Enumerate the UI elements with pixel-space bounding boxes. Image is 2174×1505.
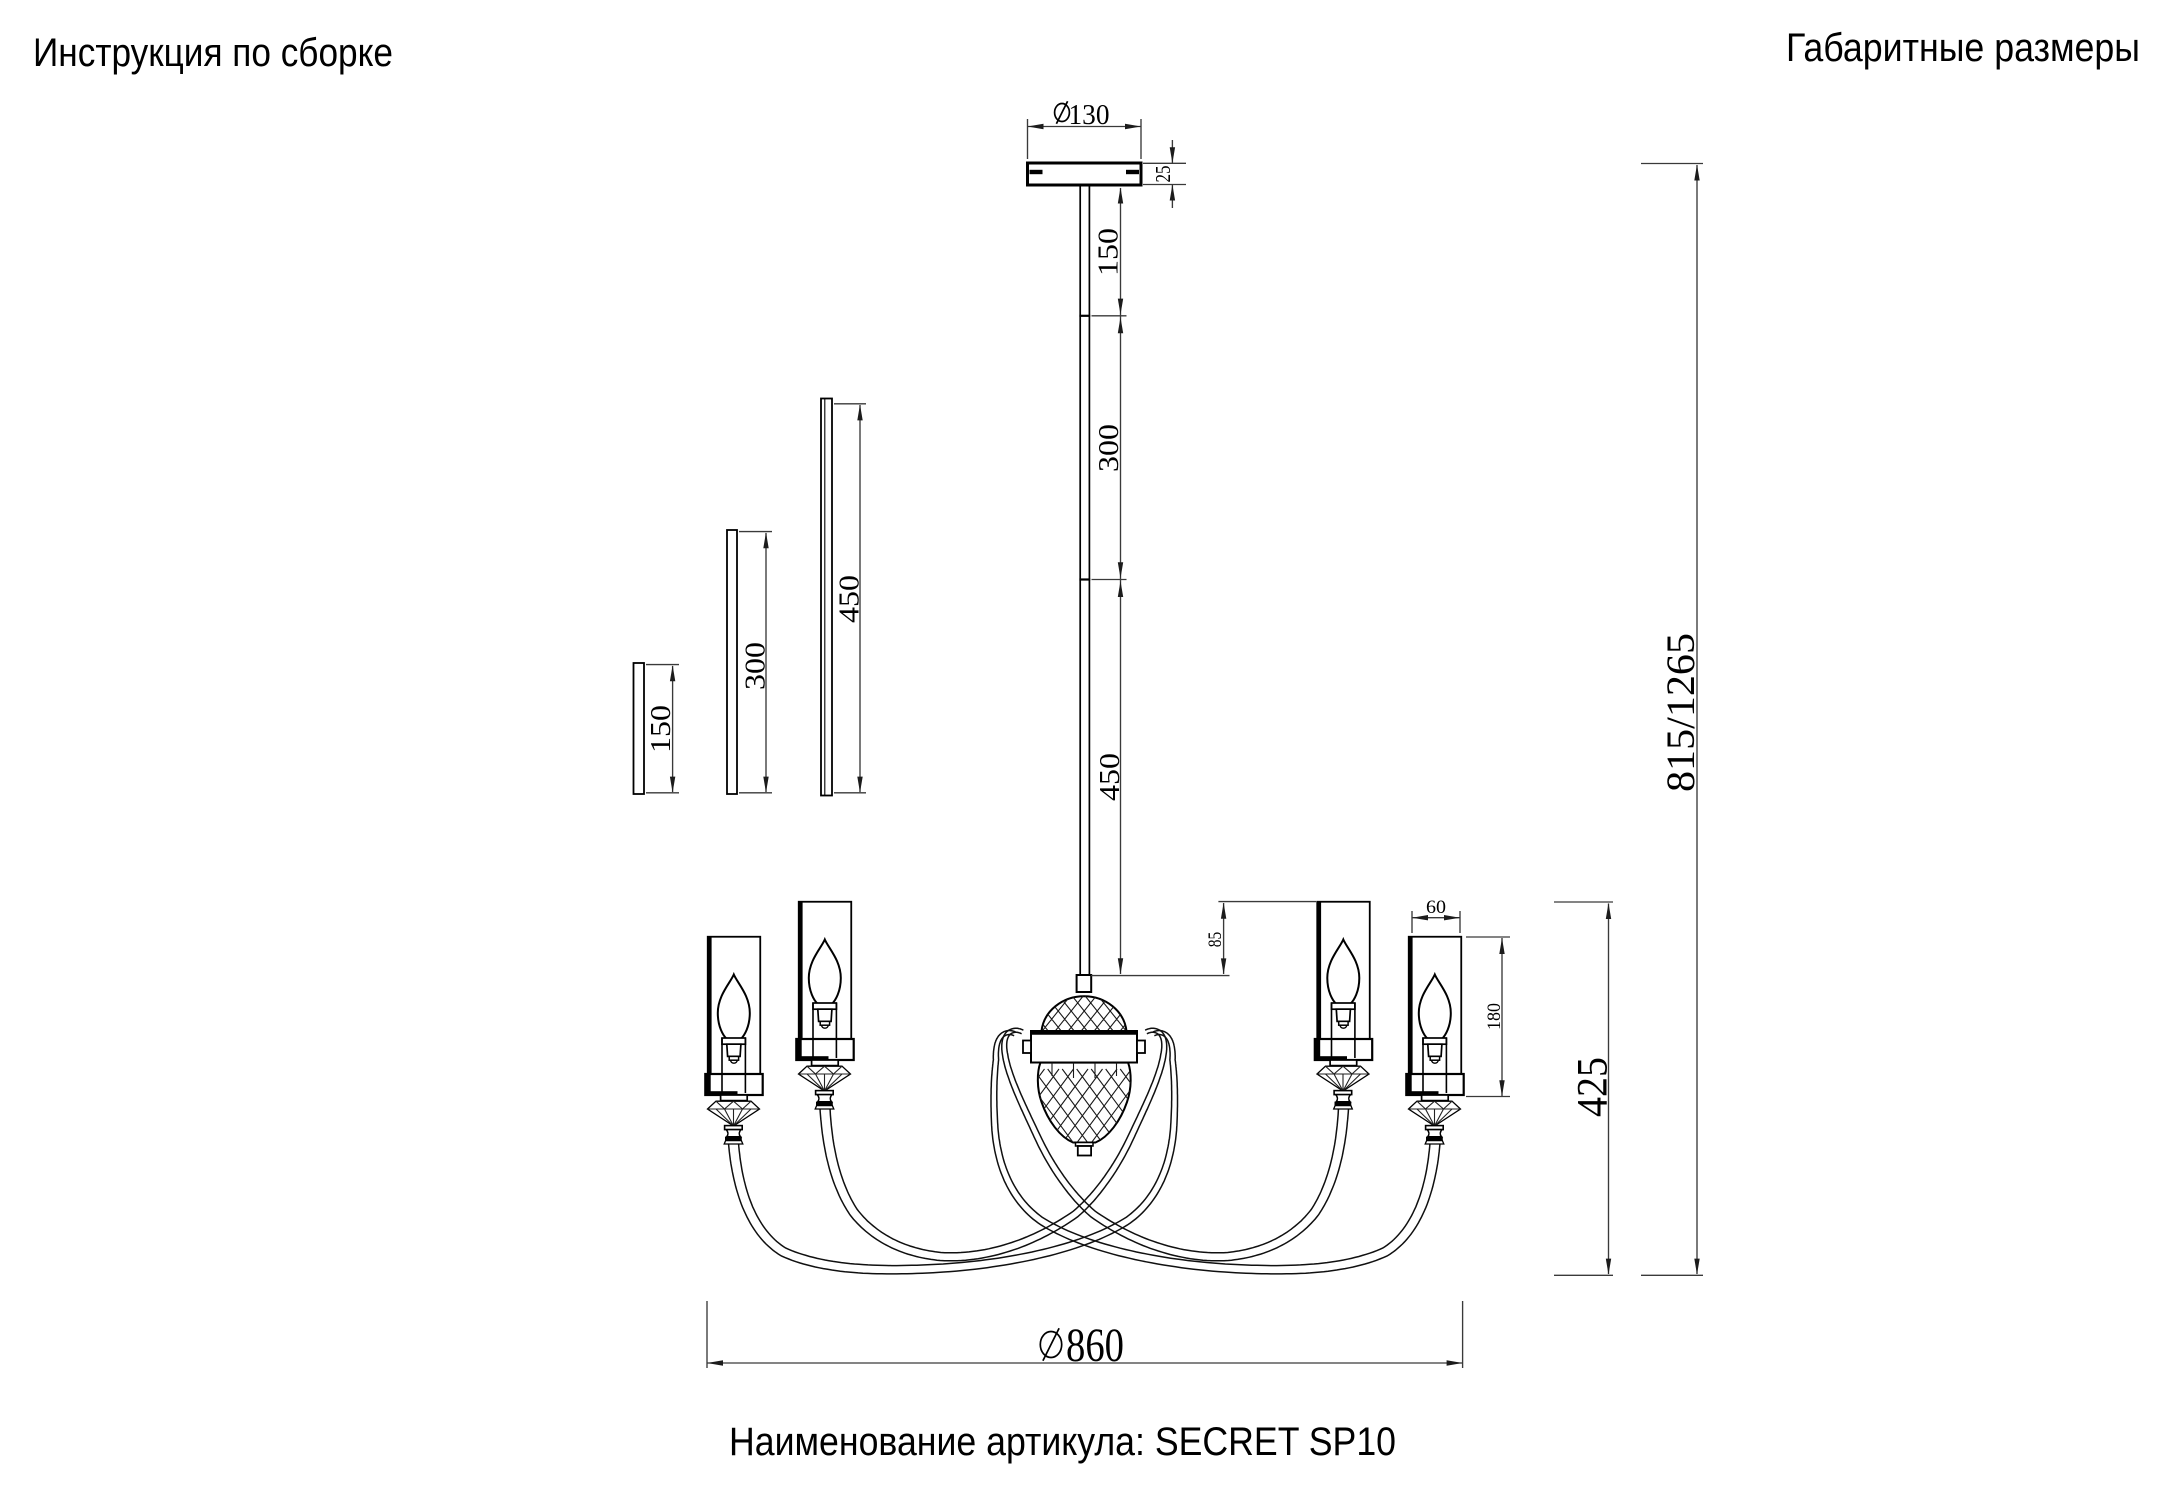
svg-text:Наименование артикула: SECRET: Наименование артикула: SECRET SP10 — [729, 1420, 1396, 1464]
svg-text:25: 25 — [1151, 166, 1175, 183]
svg-text:85: 85 — [1205, 932, 1226, 948]
svg-text:815/1265: 815/1265 — [1658, 633, 1703, 792]
svg-text:130: 130 — [1069, 100, 1110, 131]
svg-text:Габаритные размеры: Габаритные размеры — [1786, 26, 2140, 70]
svg-text:300: 300 — [741, 642, 772, 690]
svg-text:150: 150 — [646, 705, 677, 753]
svg-text:150: 150 — [1094, 228, 1125, 276]
svg-text:180: 180 — [1484, 1003, 1505, 1030]
svg-text:860: 860 — [1066, 1319, 1124, 1372]
svg-text:450: 450 — [1095, 753, 1126, 801]
svg-text:450: 450 — [835, 575, 866, 623]
svg-text:300: 300 — [1094, 424, 1125, 472]
svg-text:425: 425 — [1570, 1057, 1617, 1117]
svg-text:Инструкция по сборке: Инструкция по сборке — [33, 31, 393, 75]
svg-text:60: 60 — [1426, 897, 1446, 918]
